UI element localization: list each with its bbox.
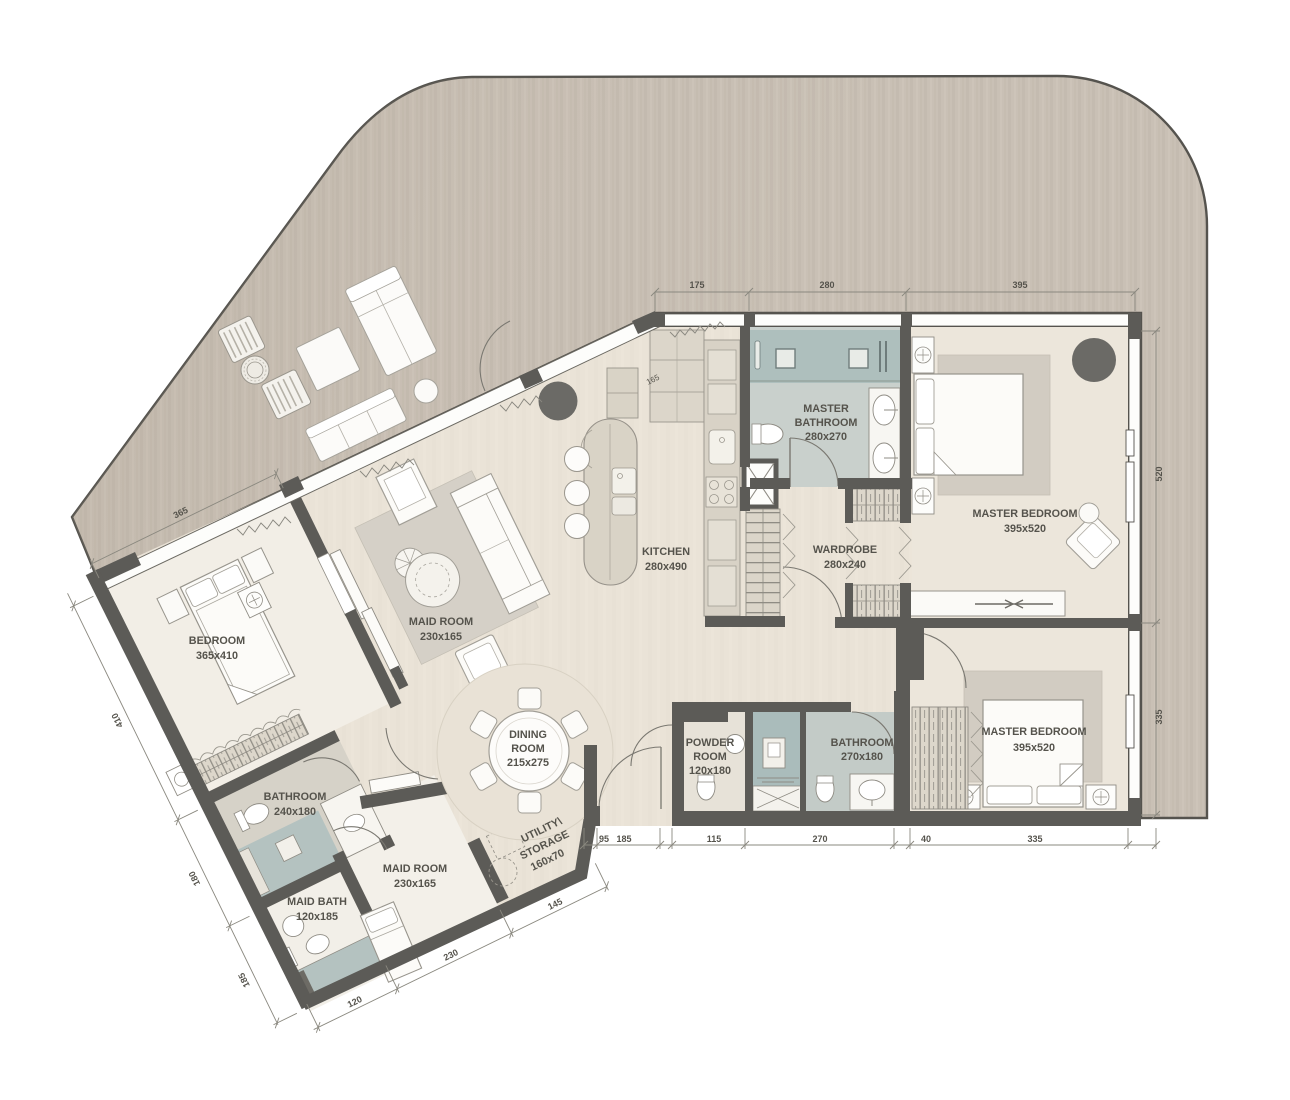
svg-text:BATHROOM: BATHROOM: [795, 417, 858, 429]
svg-text:120x185: 120x185: [296, 911, 338, 923]
svg-text:BEDROOM: BEDROOM: [189, 635, 245, 647]
svg-text:KITCHEN: KITCHEN: [642, 546, 690, 558]
svg-text:ROOM: ROOM: [693, 751, 727, 763]
svg-text:230: 230: [442, 947, 460, 963]
svg-text:115: 115: [707, 834, 722, 844]
svg-text:MAID ROOM: MAID ROOM: [409, 616, 473, 628]
svg-text:335: 335: [1027, 834, 1042, 844]
svg-text:120: 120: [346, 994, 364, 1010]
svg-text:POWDER: POWDER: [686, 737, 735, 749]
svg-text:410: 410: [109, 711, 125, 729]
svg-text:280: 280: [819, 280, 834, 290]
svg-text:215x275: 215x275: [507, 757, 549, 769]
svg-text:520: 520: [1154, 466, 1164, 481]
svg-text:185: 185: [616, 834, 631, 844]
svg-text:280x490: 280x490: [645, 561, 687, 573]
svg-text:MASTER: MASTER: [803, 403, 849, 415]
svg-text:145: 145: [546, 896, 564, 912]
svg-text:270: 270: [812, 834, 827, 844]
svg-text:240x180: 240x180: [274, 806, 316, 818]
svg-text:120x180: 120x180: [689, 765, 731, 777]
svg-text:WARDROBE: WARDROBE: [813, 544, 877, 556]
svg-text:BATHROOM: BATHROOM: [264, 791, 327, 803]
svg-text:BATHROOM: BATHROOM: [831, 737, 894, 749]
svg-text:280x240: 280x240: [824, 559, 866, 571]
svg-text:230x165: 230x165: [420, 631, 462, 643]
svg-text:MAID BATH: MAID BATH: [287, 896, 347, 908]
svg-text:DINING: DINING: [509, 729, 547, 741]
svg-text:395x520: 395x520: [1013, 742, 1055, 754]
svg-text:95: 95: [599, 834, 609, 844]
svg-text:40: 40: [921, 834, 931, 844]
svg-text:185: 185: [236, 971, 252, 989]
svg-text:MASTER BEDROOM: MASTER BEDROOM: [973, 508, 1078, 520]
svg-text:MASTER BEDROOM: MASTER BEDROOM: [982, 726, 1087, 738]
svg-text:335: 335: [1154, 709, 1164, 724]
svg-text:365x410: 365x410: [196, 650, 238, 662]
svg-text:230x165: 230x165: [394, 878, 436, 890]
svg-text:MAID ROOM: MAID ROOM: [383, 863, 447, 875]
svg-text:280x270: 280x270: [805, 431, 847, 443]
svg-text:395x520: 395x520: [1004, 523, 1046, 535]
svg-text:175: 175: [689, 280, 704, 290]
svg-text:270x180: 270x180: [841, 751, 883, 763]
svg-text:180: 180: [187, 870, 203, 888]
svg-text:ROOM: ROOM: [511, 743, 545, 755]
svg-text:395: 395: [1012, 280, 1027, 290]
